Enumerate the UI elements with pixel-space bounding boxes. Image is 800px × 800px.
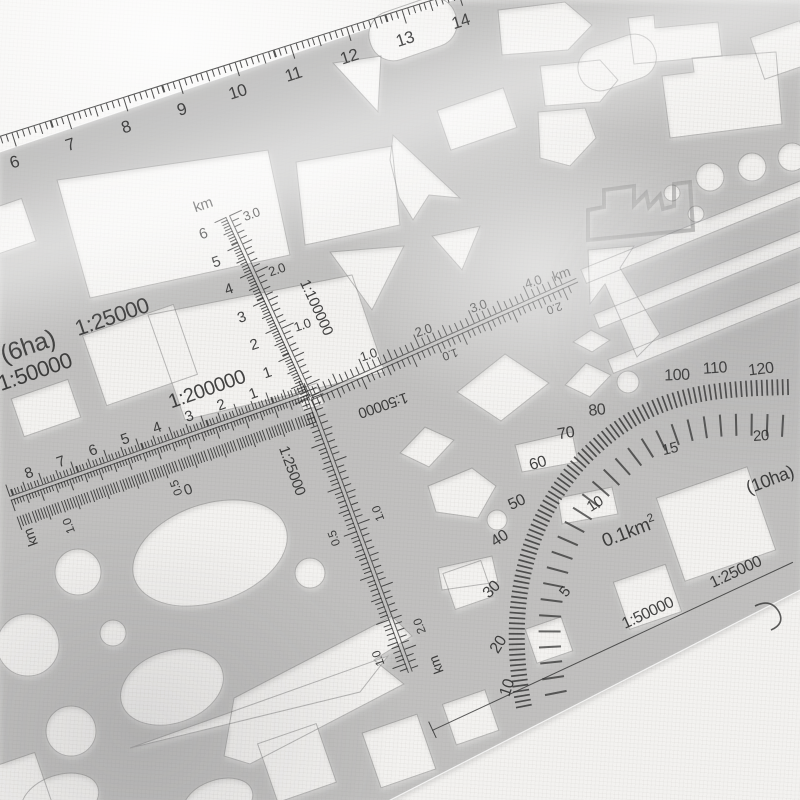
protractor-outer-number: 10	[497, 677, 519, 699]
protractor-inner-number: 10	[584, 493, 607, 516]
protractor-outer-number: 30	[480, 578, 505, 603]
protractor-outer-number: 100	[664, 367, 690, 386]
protractor-outer-number: 70	[556, 424, 576, 445]
protractor-outer-number: 110	[702, 359, 728, 379]
protractor-outer-number: 50	[505, 491, 528, 514]
protractor-outer-number: 40	[488, 527, 512, 551]
protractor-outer-number: 20	[487, 633, 511, 657]
label-layer: 0.1km2 10203040506070801001101205101520k…	[0, 0, 800, 800]
protractor-outer-number: 120	[747, 360, 775, 381]
area-label-01km2: 0.1km2	[599, 511, 660, 553]
protractor-inner-number: 15	[660, 439, 680, 459]
protractor-outer-number: 60	[527, 453, 549, 475]
photo-scene: 67891011121314876543211:200000km1.00.565…	[0, 0, 800, 800]
km-label: km	[191, 194, 215, 216]
zero-label: 0	[181, 481, 194, 500]
protractor-inner-number: 5	[556, 584, 574, 601]
protractor-outer-number: 80	[588, 401, 607, 421]
hectare10-label: (10ha)	[743, 461, 797, 498]
protractor-inner-number: 20	[752, 427, 769, 445]
scale-25000-label: 1:25000	[71, 292, 152, 342]
